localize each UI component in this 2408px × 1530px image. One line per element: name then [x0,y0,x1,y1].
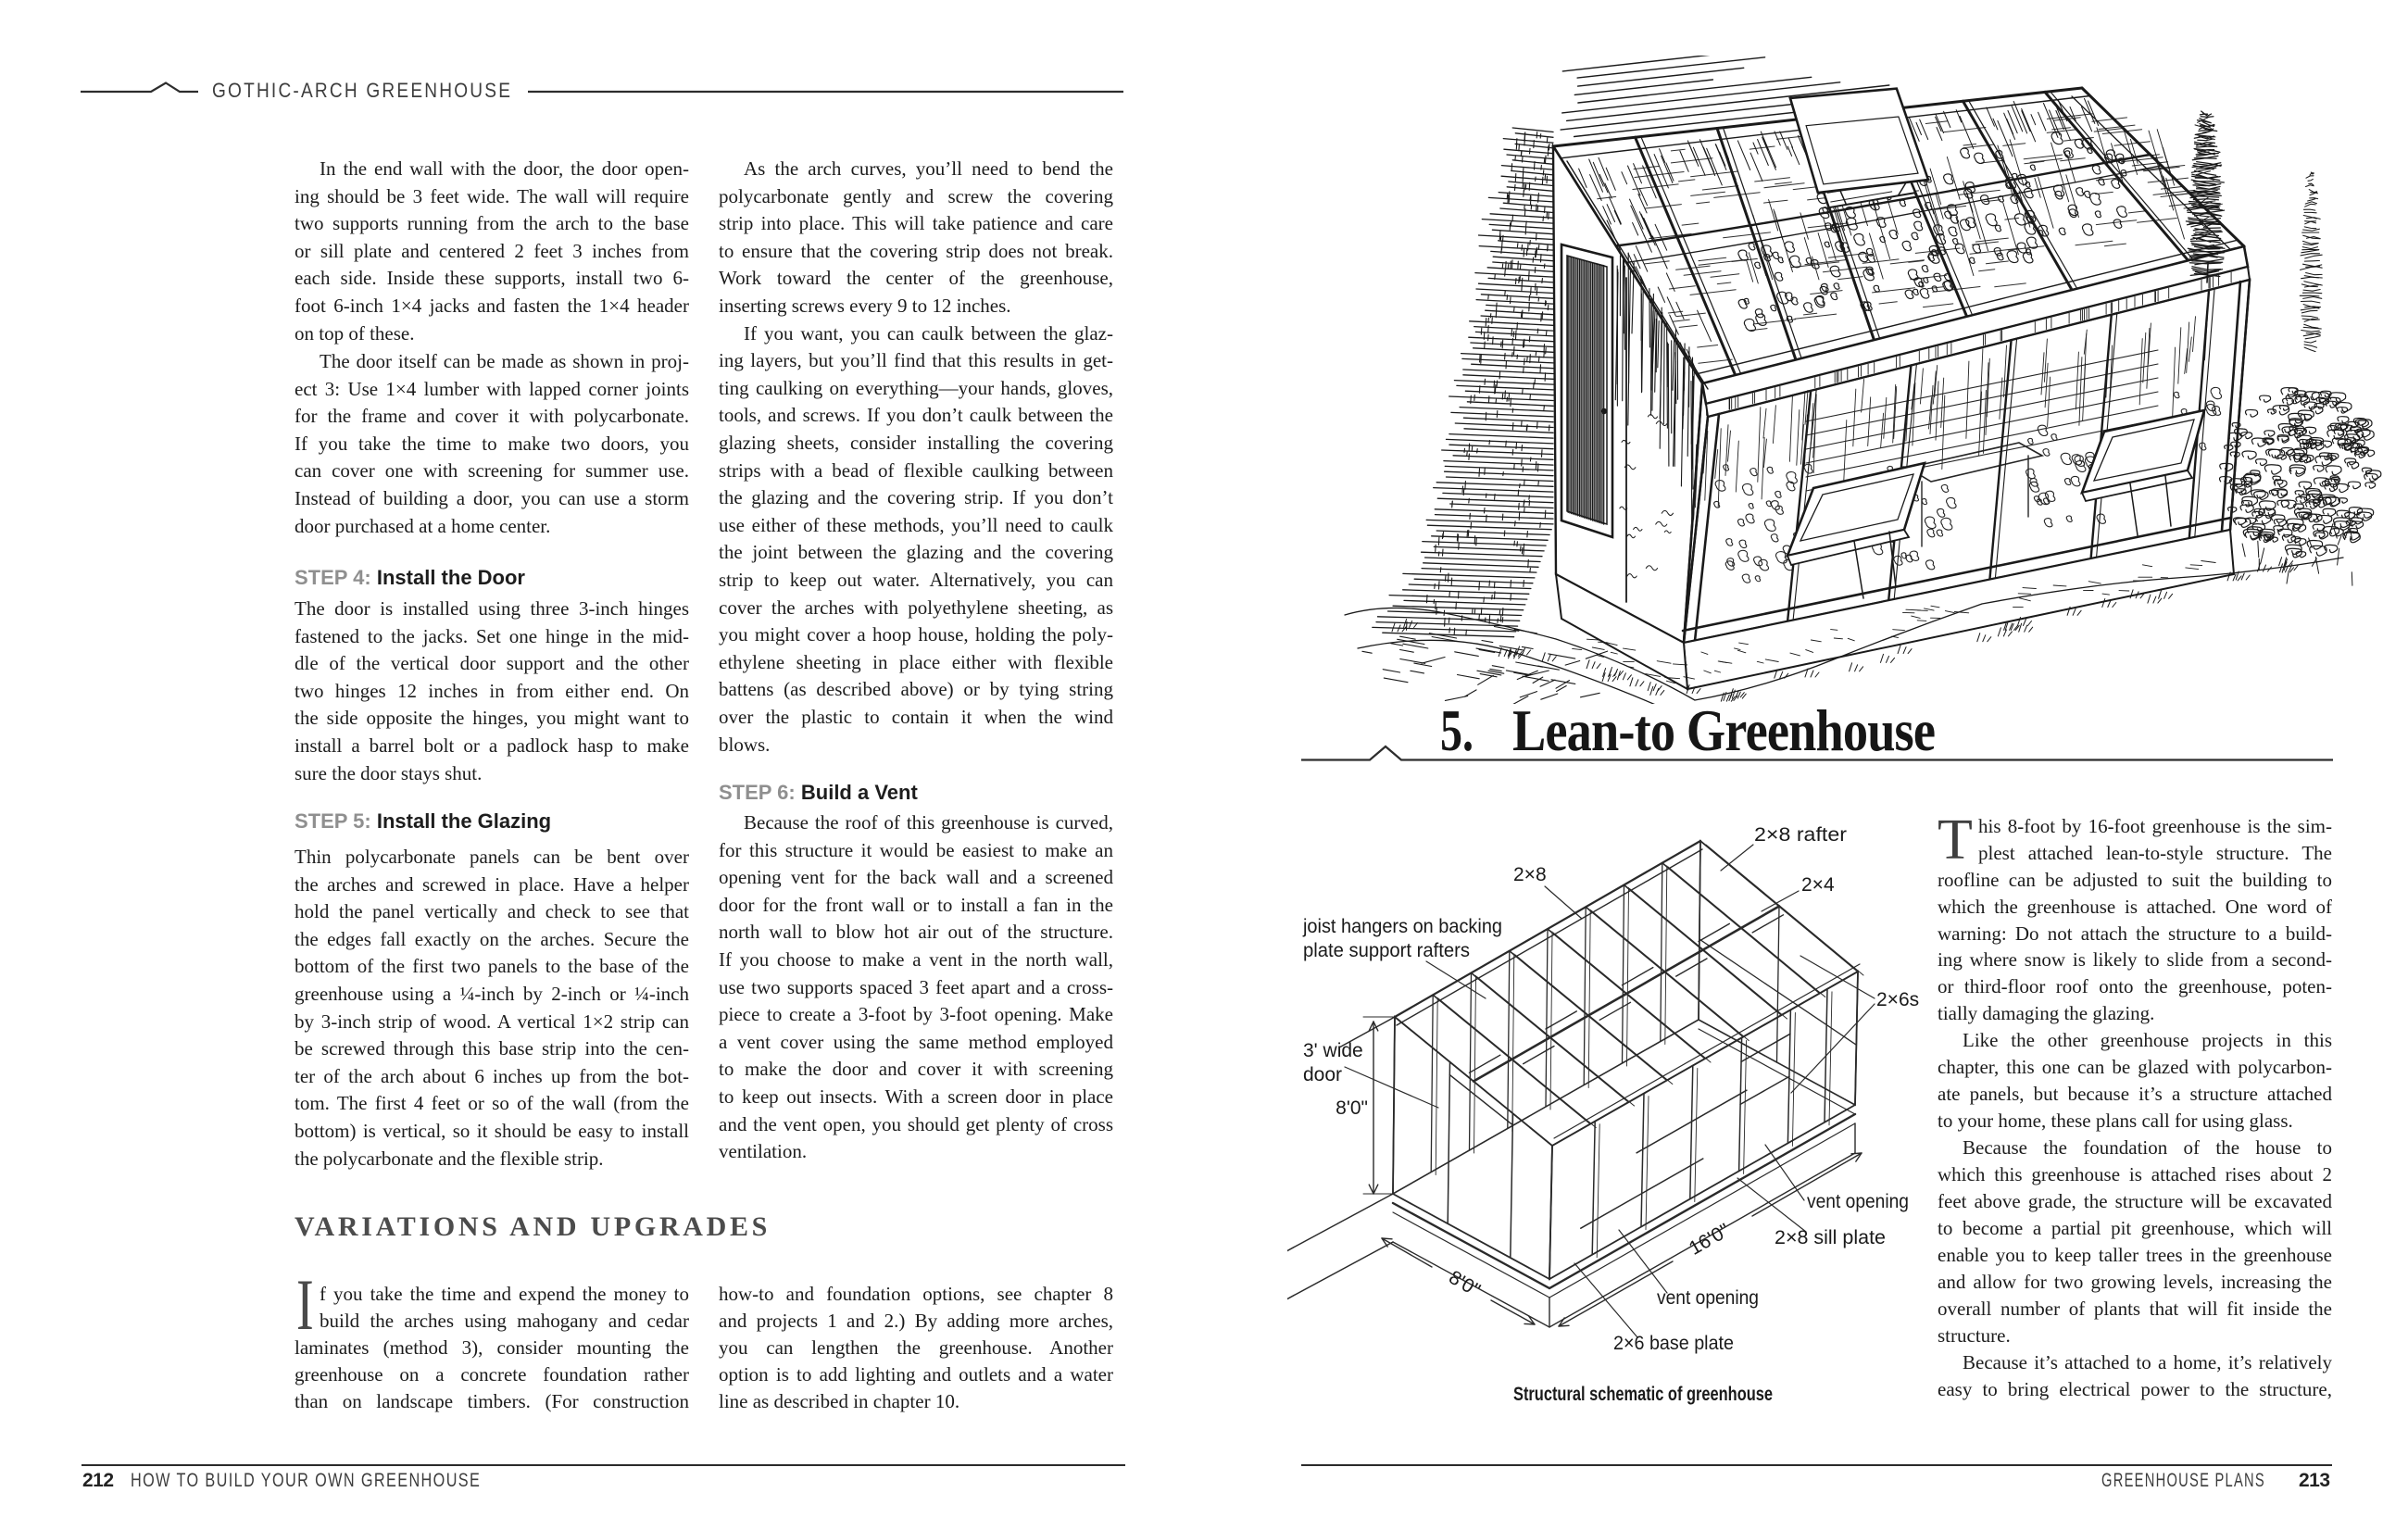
svg-text:plate support rafters: plate support rafters [1303,940,1470,961]
svg-text:vent opening: vent opening [1807,1191,1909,1212]
svg-text:8'0": 8'0" [1336,1097,1368,1119]
svg-text:door: door [1303,1064,1342,1085]
svg-text:16'0": 16'0" [1686,1220,1734,1260]
svg-text:2×8: 2×8 [1513,864,1547,885]
svg-text:Structural schematic of greenh: Structural schematic of greenhouse [1513,1384,1773,1405]
svg-text:2×8 rafter: 2×8 rafter [1754,824,1847,846]
svg-text:joist hangers on backing: joist hangers on backing [1302,916,1502,937]
svg-text:8'0": 8'0" [1445,1267,1484,1301]
svg-text:vent opening: vent opening [1657,1287,1759,1309]
svg-text:2×6s: 2×6s [1876,989,1919,1010]
svg-text:2×4: 2×4 [1801,874,1835,896]
svg-text:2×8 sill plate: 2×8 sill plate [1775,1227,1886,1248]
svg-text:2×6 base plate: 2×6 base plate [1613,1333,1734,1354]
svg-text:3' wide: 3' wide [1303,1040,1363,1061]
